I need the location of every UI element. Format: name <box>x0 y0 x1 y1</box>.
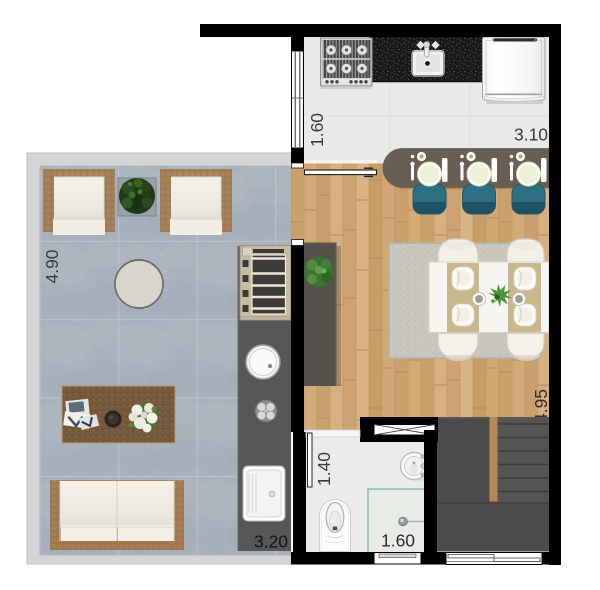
svg-text:3.10: 3.10 <box>514 125 548 145</box>
svg-text:3.20: 3.20 <box>254 532 288 552</box>
svg-text:1.60: 1.60 <box>307 113 327 147</box>
svg-text:1.60: 1.60 <box>381 531 415 551</box>
svg-text:4.90: 4.90 <box>42 249 62 283</box>
svg-text:1.40: 1.40 <box>314 452 334 486</box>
